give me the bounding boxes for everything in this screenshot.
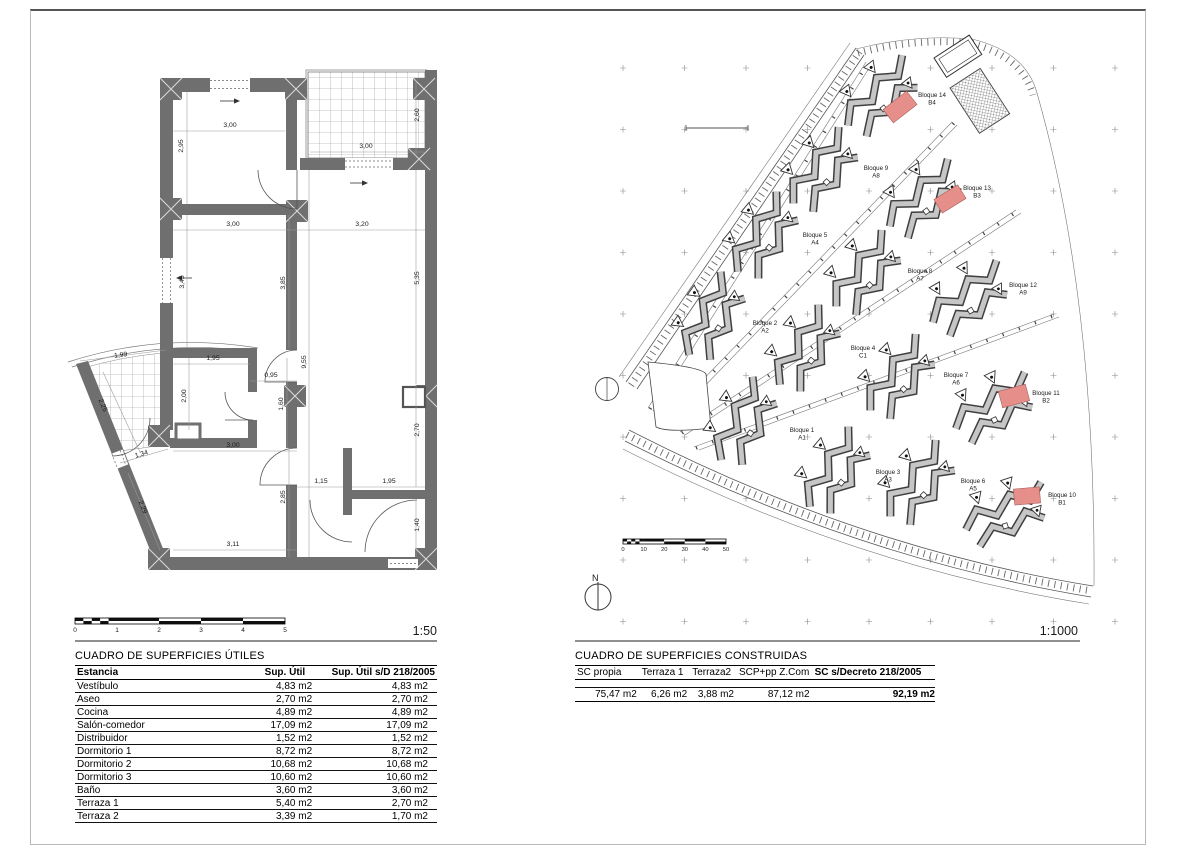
table-row: Salón-comedor17,09 m217,09 m2: [75, 719, 437, 732]
table-cell: 3,60 m2: [249, 784, 321, 797]
table-row: Cocina4,89 m24,89 m2: [75, 706, 437, 719]
dimension-label: 3,00: [226, 442, 239, 449]
table-cell: 2,70 m2: [321, 693, 437, 706]
reference-segment: [686, 125, 748, 131]
table-cell: 2,70 m2: [249, 693, 321, 706]
col-header: Estancia: [75, 666, 249, 680]
block-label: Bloque 11B2: [1032, 390, 1060, 404]
sp-scale-ticks: 01020304050: [621, 547, 729, 553]
table-cell: 6,26 m2: [640, 688, 690, 702]
table-cell: 10,60 m2: [249, 771, 321, 784]
block-label: Bloque 3A3: [876, 469, 901, 483]
col-header: SCP+pp Z.Com: [737, 666, 813, 680]
table-row: Distribuidor1,52 m21,52 m2: [75, 732, 437, 745]
table-cell: 87,12 m2: [737, 688, 813, 702]
table-header-row: SC propia Terraza 1 Terraza2 SCP+pp Z.Co…: [575, 666, 935, 680]
scale-tick: 10: [640, 547, 646, 553]
block-label: Bloque 13B3: [963, 185, 991, 199]
scale-tick: 2: [157, 627, 161, 634]
table-row: Aseo2,70 m22,70 m2: [75, 693, 437, 706]
dimension-label: 3,00: [223, 122, 236, 129]
table-cell: 3,60 m2: [321, 784, 437, 797]
table-row: 75,47 m26,26 m23,88 m287,12 m292,19 m2: [575, 688, 935, 702]
table-cell: Aseo: [75, 693, 249, 706]
table-cell: 1,70 m2: [321, 810, 437, 823]
dimension-label: 3,11: [227, 541, 240, 548]
dimension-label: 3,00: [359, 143, 372, 150]
table-cell: 8,72 m2: [321, 745, 437, 758]
col-header: SC propia: [575, 666, 640, 680]
dimension-label: 3,00: [226, 221, 239, 228]
table-cell: 1,52 m2: [321, 732, 437, 745]
block-label: Bloque 10B1: [1048, 492, 1076, 506]
scale-tick: 3: [199, 627, 203, 634]
table-cell: Salón-comedor: [75, 719, 249, 732]
dimension-label: 3,85: [280, 276, 287, 289]
dimension-label: 2,00: [181, 389, 188, 402]
dim-labels: 3,002,952,603,003,003,203,453,855,351,95…: [97, 108, 421, 548]
north-label: N: [592, 573, 599, 583]
dimension-label: 3,45: [179, 275, 186, 288]
table-cell: Distribuidor: [75, 732, 249, 745]
hatched-court: [950, 68, 1010, 133]
table-header-row: Estancia Sup. Útil Sup. Útil s/D 218/200…: [75, 666, 437, 680]
block-label: Bloque 4C1: [851, 345, 876, 359]
scale-tick: 20: [661, 547, 667, 553]
block-label: Bloque 12A9: [1009, 282, 1037, 296]
table-superficies-utiles: CUADRO DE SUPERFICIES ÚTILES Estancia Su…: [75, 650, 437, 823]
scale-tick: 30: [682, 547, 688, 553]
table-row: Dormitorio 18,72 m28,72 m2: [75, 745, 437, 758]
table-cell: 4,83 m2: [249, 680, 321, 693]
table-cell: 4,83 m2: [321, 680, 437, 693]
table-cell: 75,47 m2: [575, 688, 640, 702]
table-cell: Dormitorio 2: [75, 758, 249, 771]
col-header: Sup. Útil s/D 218/2005: [321, 666, 437, 680]
table-cell: 10,68 m2: [321, 758, 437, 771]
dimension-label: 0,95: [264, 372, 277, 379]
dimension-label: 1,95: [206, 355, 219, 362]
scale-tick: 4: [241, 627, 245, 634]
north-arrow: N: [585, 573, 611, 610]
table-row: Terraza 15,40 m22,70 m2: [75, 797, 437, 810]
col-header: SC s/Decreto 218/2005: [813, 666, 935, 680]
col-header: Sup. Útil: [249, 666, 321, 680]
table-cell: 4,89 m2: [249, 706, 321, 719]
table-title: CUADRO DE SUPERFICIES CONSTRUIDAS: [575, 650, 935, 662]
sp-scale-label: 1:1000: [1040, 624, 1078, 638]
table-cell: 3,88 m2: [690, 688, 737, 702]
scale-tick: 1: [115, 627, 119, 634]
table-cell: 10,68 m2: [249, 758, 321, 771]
col-header: Terraza2: [690, 666, 737, 680]
table-superficies-construidas: CUADRO DE SUPERFICIES CONSTRUIDAS SC pro…: [575, 650, 935, 702]
scale-tick: 40: [702, 547, 708, 553]
dimension-label: 9,55: [301, 355, 308, 368]
block-labels: Bloque 1A1Bloque 2A2Bloque 3A3Bloque 4C1…: [753, 92, 1077, 506]
dimension-label: 1,60: [278, 397, 285, 410]
drawing-sheet-page: { "sheet": { "fp_scale": "1:50", "sp_sca…: [0, 0, 1200, 850]
table-cell: Baño: [75, 784, 249, 797]
table-cell: 8,72 m2: [249, 745, 321, 758]
table-row: Terraza 23,39 m21,70 m2: [75, 810, 437, 823]
table-cell: Dormitorio 1: [75, 745, 249, 758]
table-row: Dormitorio 310,60 m210,60 m2: [75, 771, 437, 784]
table-cell: Cocina: [75, 706, 249, 719]
dimension-label: 1,34: [134, 449, 149, 460]
table-cell: Vestíbulo: [75, 680, 249, 693]
block-label: Bloque 5A4: [803, 232, 828, 246]
dimension-label: 1,95: [382, 478, 395, 485]
table-cell: 17,09 m2: [249, 719, 321, 732]
table-title: CUADRO DE SUPERFICIES ÚTILES: [75, 650, 437, 662]
table-row: Baño3,60 m23,60 m2: [75, 784, 437, 797]
dimension-label: 1,40: [414, 518, 421, 531]
table-cell: Terraza 2: [75, 810, 249, 823]
floor-plan-drawing: 3,002,952,603,003,003,203,453,855,351,95…: [55, 50, 465, 650]
table-row: Vestíbulo4,83 m24,83 m2: [75, 680, 437, 693]
dimension-label: 5,35: [414, 271, 421, 284]
block-highlight: [1013, 487, 1040, 505]
table-cell: 5,40 m2: [249, 797, 321, 810]
table-cell: 1,52 m2: [249, 732, 321, 745]
fp-scale-label: 1:50: [413, 624, 437, 638]
dimension-label: 2,85: [280, 490, 287, 503]
pool: [934, 35, 982, 77]
table-cell: 4,89 m2: [321, 706, 437, 719]
block-label: Bloque 7A6: [944, 372, 969, 386]
block-label: Bloque 9A8: [864, 165, 889, 179]
table-cell: Terraza 1: [75, 797, 249, 810]
table-cell: 17,09 m2: [321, 719, 437, 732]
dimension-label: 2,95: [178, 139, 185, 152]
table-row: Dormitorio 210,68 m210,68 m2: [75, 758, 437, 771]
table-cell: 92,19 m2: [813, 688, 935, 702]
site-plan-drawing: Bloque 1A1Bloque 2A2Bloque 3A3Bloque 4C1…: [560, 20, 1180, 665]
col-header: Terraza 1: [640, 666, 690, 680]
dimension-label: 2,70: [414, 423, 421, 436]
table-cell: 10,60 m2: [321, 771, 437, 784]
scale-tick: 50: [723, 547, 729, 553]
block-label: Bloque 6A5: [961, 478, 986, 492]
table-cell: Dormitorio 3: [75, 771, 249, 784]
closet-box: [176, 424, 200, 440]
scale-tick: 5: [283, 627, 287, 634]
fp-scale-ticks: 012345: [73, 627, 287, 634]
sp-scale-bar: [623, 539, 726, 544]
table-cell: 2,70 m2: [321, 797, 437, 810]
dimension-label: 1,15: [314, 478, 327, 485]
block-label: Bloque 14B4: [918, 92, 946, 106]
scale-tick: 0: [621, 547, 624, 553]
fp-scale-bar: [75, 618, 285, 624]
dimension-label: 2,60: [414, 108, 421, 121]
scale-tick: 0: [73, 627, 77, 634]
dimension-label: 3,20: [355, 221, 368, 228]
shaft-box: [403, 387, 425, 407]
table-cell: 3,39 m2: [249, 810, 321, 823]
block-label: Bloque 1A1: [790, 427, 815, 441]
